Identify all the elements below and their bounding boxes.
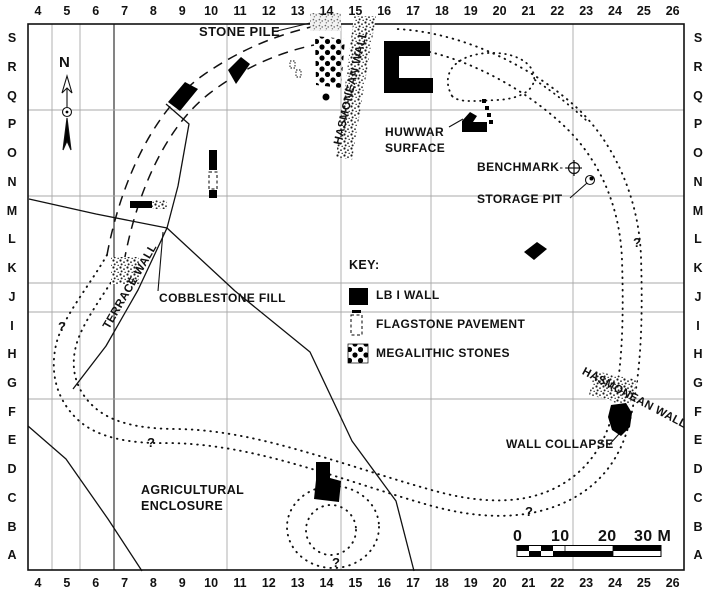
grid-column-top-5: 5 xyxy=(63,4,70,18)
grid-row-right-N: N xyxy=(693,175,702,189)
key-symbol-lb1-wall xyxy=(349,288,368,305)
grid-column-top-4: 4 xyxy=(35,4,42,18)
key-symbol-flagstone xyxy=(351,315,362,335)
grid-row-left-R: R xyxy=(7,60,16,74)
enclosure-dashed-arc xyxy=(107,27,314,262)
grid-row-right-D: D xyxy=(693,462,702,476)
grid-row-right-O: O xyxy=(693,146,703,160)
question-mark-west: ? xyxy=(58,319,66,334)
question-mark-south: ? xyxy=(525,504,533,519)
scale-bar xyxy=(517,546,661,557)
grid-row-left-Q: Q xyxy=(7,89,17,103)
key-symbol-megalithic xyxy=(348,344,368,363)
grid-column-bottom-23: 23 xyxy=(579,576,593,590)
grid-row-left-L: L xyxy=(8,232,16,246)
grid-column-top-13: 13 xyxy=(291,4,305,18)
key-flagstone-label: FLAGSTONE PAVEMENT xyxy=(376,318,525,330)
grid-column-bottom-18: 18 xyxy=(435,576,449,590)
grid-row-left-I: I xyxy=(10,319,13,333)
grid-column-top-18: 18 xyxy=(435,4,449,18)
grid-row-right-F: F xyxy=(694,405,702,419)
grid-column-top-8: 8 xyxy=(150,4,157,18)
grid-row-left-A: A xyxy=(7,548,16,562)
grid-row-right-K: K xyxy=(693,261,702,275)
grid-row-right-E: E xyxy=(694,433,702,447)
grid-row-left-D: D xyxy=(7,462,16,476)
grid-row-right-A: A xyxy=(693,548,702,562)
storage-pit-symbol xyxy=(586,176,595,185)
question-mark-east: ? xyxy=(633,235,641,250)
grid-column-top-9: 9 xyxy=(179,4,186,18)
scale-tick-10: 10 xyxy=(551,529,570,545)
grid-row-left-P: P xyxy=(8,117,16,131)
grid-row-right-Q: Q xyxy=(693,89,703,103)
grid-column-top-7: 7 xyxy=(121,4,128,18)
grid-column-bottom-21: 21 xyxy=(521,576,535,590)
grid-column-top-16: 16 xyxy=(377,4,391,18)
key-symbols xyxy=(348,288,368,363)
grid-column-bottom-11: 11 xyxy=(233,576,246,590)
grid-column-bottom-14: 14 xyxy=(320,576,334,590)
grid-row-left-G: G xyxy=(7,376,17,390)
grid-row-right-G: G xyxy=(693,376,703,390)
grid-row-right-L: L xyxy=(694,232,702,246)
grid-column-bottom-4: 4 xyxy=(35,576,42,590)
huwwar-surface-label-line2: SURFACE xyxy=(385,142,445,154)
storage-pit-label: STORAGE PIT xyxy=(477,193,563,205)
agricultural-enclosure-label-line2: ENCLOSURE xyxy=(141,500,223,513)
scale-tick-30: 30 M xyxy=(634,529,671,545)
key-lb1-wall-label: LB I WALL xyxy=(376,289,440,301)
grid-row-right-R: R xyxy=(693,60,702,74)
grid-row-left-B: B xyxy=(7,520,16,534)
grid-column-top-17: 17 xyxy=(406,4,420,18)
scale-tick-0: 0 xyxy=(513,529,522,545)
grid-row-right-M: M xyxy=(693,204,703,218)
grid-column-bottom-22: 22 xyxy=(550,576,564,590)
agricultural-enclosure-label-line1: AGRICULTURAL xyxy=(141,484,244,497)
grid-row-left-J: J xyxy=(9,290,16,304)
key-title: KEY: xyxy=(349,259,380,272)
grid-row-right-B: B xyxy=(693,520,702,534)
grid-row-left-K: K xyxy=(7,261,16,275)
huwwar-dotted-outline xyxy=(448,53,587,121)
grid-column-top-20: 20 xyxy=(493,4,507,18)
grid-column-top-21: 21 xyxy=(521,4,535,18)
grid-row-right-S: S xyxy=(694,31,702,45)
grid-row-left-M: M xyxy=(7,204,17,218)
grid-column-top-6: 6 xyxy=(92,4,99,18)
grid-column-top-11: 11 xyxy=(233,4,246,18)
grid-column-bottom-19: 19 xyxy=(464,576,478,590)
huwwar-surface-label-line1: HUWWAR xyxy=(385,126,444,138)
megalithic-stones-patch xyxy=(315,36,345,88)
grid-row-left-H: H xyxy=(7,347,16,361)
cobblestone-bar-stipple xyxy=(152,200,167,209)
grid-column-bottom-17: 17 xyxy=(406,576,420,590)
question-mark-bottom: ? xyxy=(332,555,340,570)
grid-column-top-12: 12 xyxy=(262,4,276,18)
grid-row-right-J: J xyxy=(695,290,702,304)
question-mark-agricultural: ? xyxy=(147,435,155,450)
benchmark-label: BENCHMARK xyxy=(477,161,559,173)
north-label: N xyxy=(59,55,70,70)
grid-row-left-E: E xyxy=(8,433,16,447)
key-megalithic-label: MEGALITHIC STONES xyxy=(376,347,510,359)
grid-column-top-10: 10 xyxy=(204,4,218,18)
grid-column-bottom-12: 12 xyxy=(262,576,276,590)
benchmark-symbol xyxy=(566,160,582,176)
grid-row-left-C: C xyxy=(7,491,16,505)
grid-row-right-C: C xyxy=(693,491,702,505)
grid-column-bottom-15: 15 xyxy=(348,576,362,590)
grid-column-bottom-20: 20 xyxy=(493,576,507,590)
grid-column-bottom-26: 26 xyxy=(666,576,680,590)
flagstone-pavement-strip xyxy=(209,61,301,198)
grid-column-top-14: 14 xyxy=(320,4,334,18)
north-arrow xyxy=(62,76,72,150)
grid-column-top-22: 22 xyxy=(550,4,564,18)
grid-column-bottom-10: 10 xyxy=(204,576,218,590)
grid-column-bottom-7: 7 xyxy=(121,576,128,590)
grid-column-bottom-6: 6 xyxy=(92,576,99,590)
grid-row-left-S: S xyxy=(8,31,16,45)
grid-row-left-O: O xyxy=(7,146,17,160)
grid-column-bottom-13: 13 xyxy=(291,576,305,590)
grid-row-right-P: P xyxy=(694,117,702,131)
grid-column-bottom-8: 8 xyxy=(150,576,157,590)
stone-pile-label: STONE PILE xyxy=(199,25,280,38)
grid-column-top-19: 19 xyxy=(464,4,478,18)
grid-column-top-25: 25 xyxy=(637,4,651,18)
grid-column-top-26: 26 xyxy=(666,4,680,18)
scale-tick-20: 20 xyxy=(598,529,617,545)
wall-collapse-label: WALL COLLAPSE xyxy=(506,438,614,450)
grid-row-right-I: I xyxy=(696,319,699,333)
grid-column-bottom-24: 24 xyxy=(608,576,622,590)
grid-column-bottom-25: 25 xyxy=(637,576,651,590)
grid-column-bottom-16: 16 xyxy=(377,576,391,590)
site-plan: NSTONE PILEHASMONEAN WALLHUWWARSURFACEBE… xyxy=(0,0,709,595)
grid-column-bottom-9: 9 xyxy=(179,576,186,590)
cobblestone-fill-label: COBBLESTONE FILL xyxy=(159,292,286,304)
grid-column-bottom-5: 5 xyxy=(63,576,70,590)
grid-row-right-H: H xyxy=(693,347,702,361)
grid-column-top-15: 15 xyxy=(348,4,362,18)
grid-row-left-F: F xyxy=(8,405,16,419)
grid-column-top-24: 24 xyxy=(608,4,622,18)
grid-row-left-N: N xyxy=(7,175,16,189)
grid-column-top-23: 23 xyxy=(579,4,593,18)
